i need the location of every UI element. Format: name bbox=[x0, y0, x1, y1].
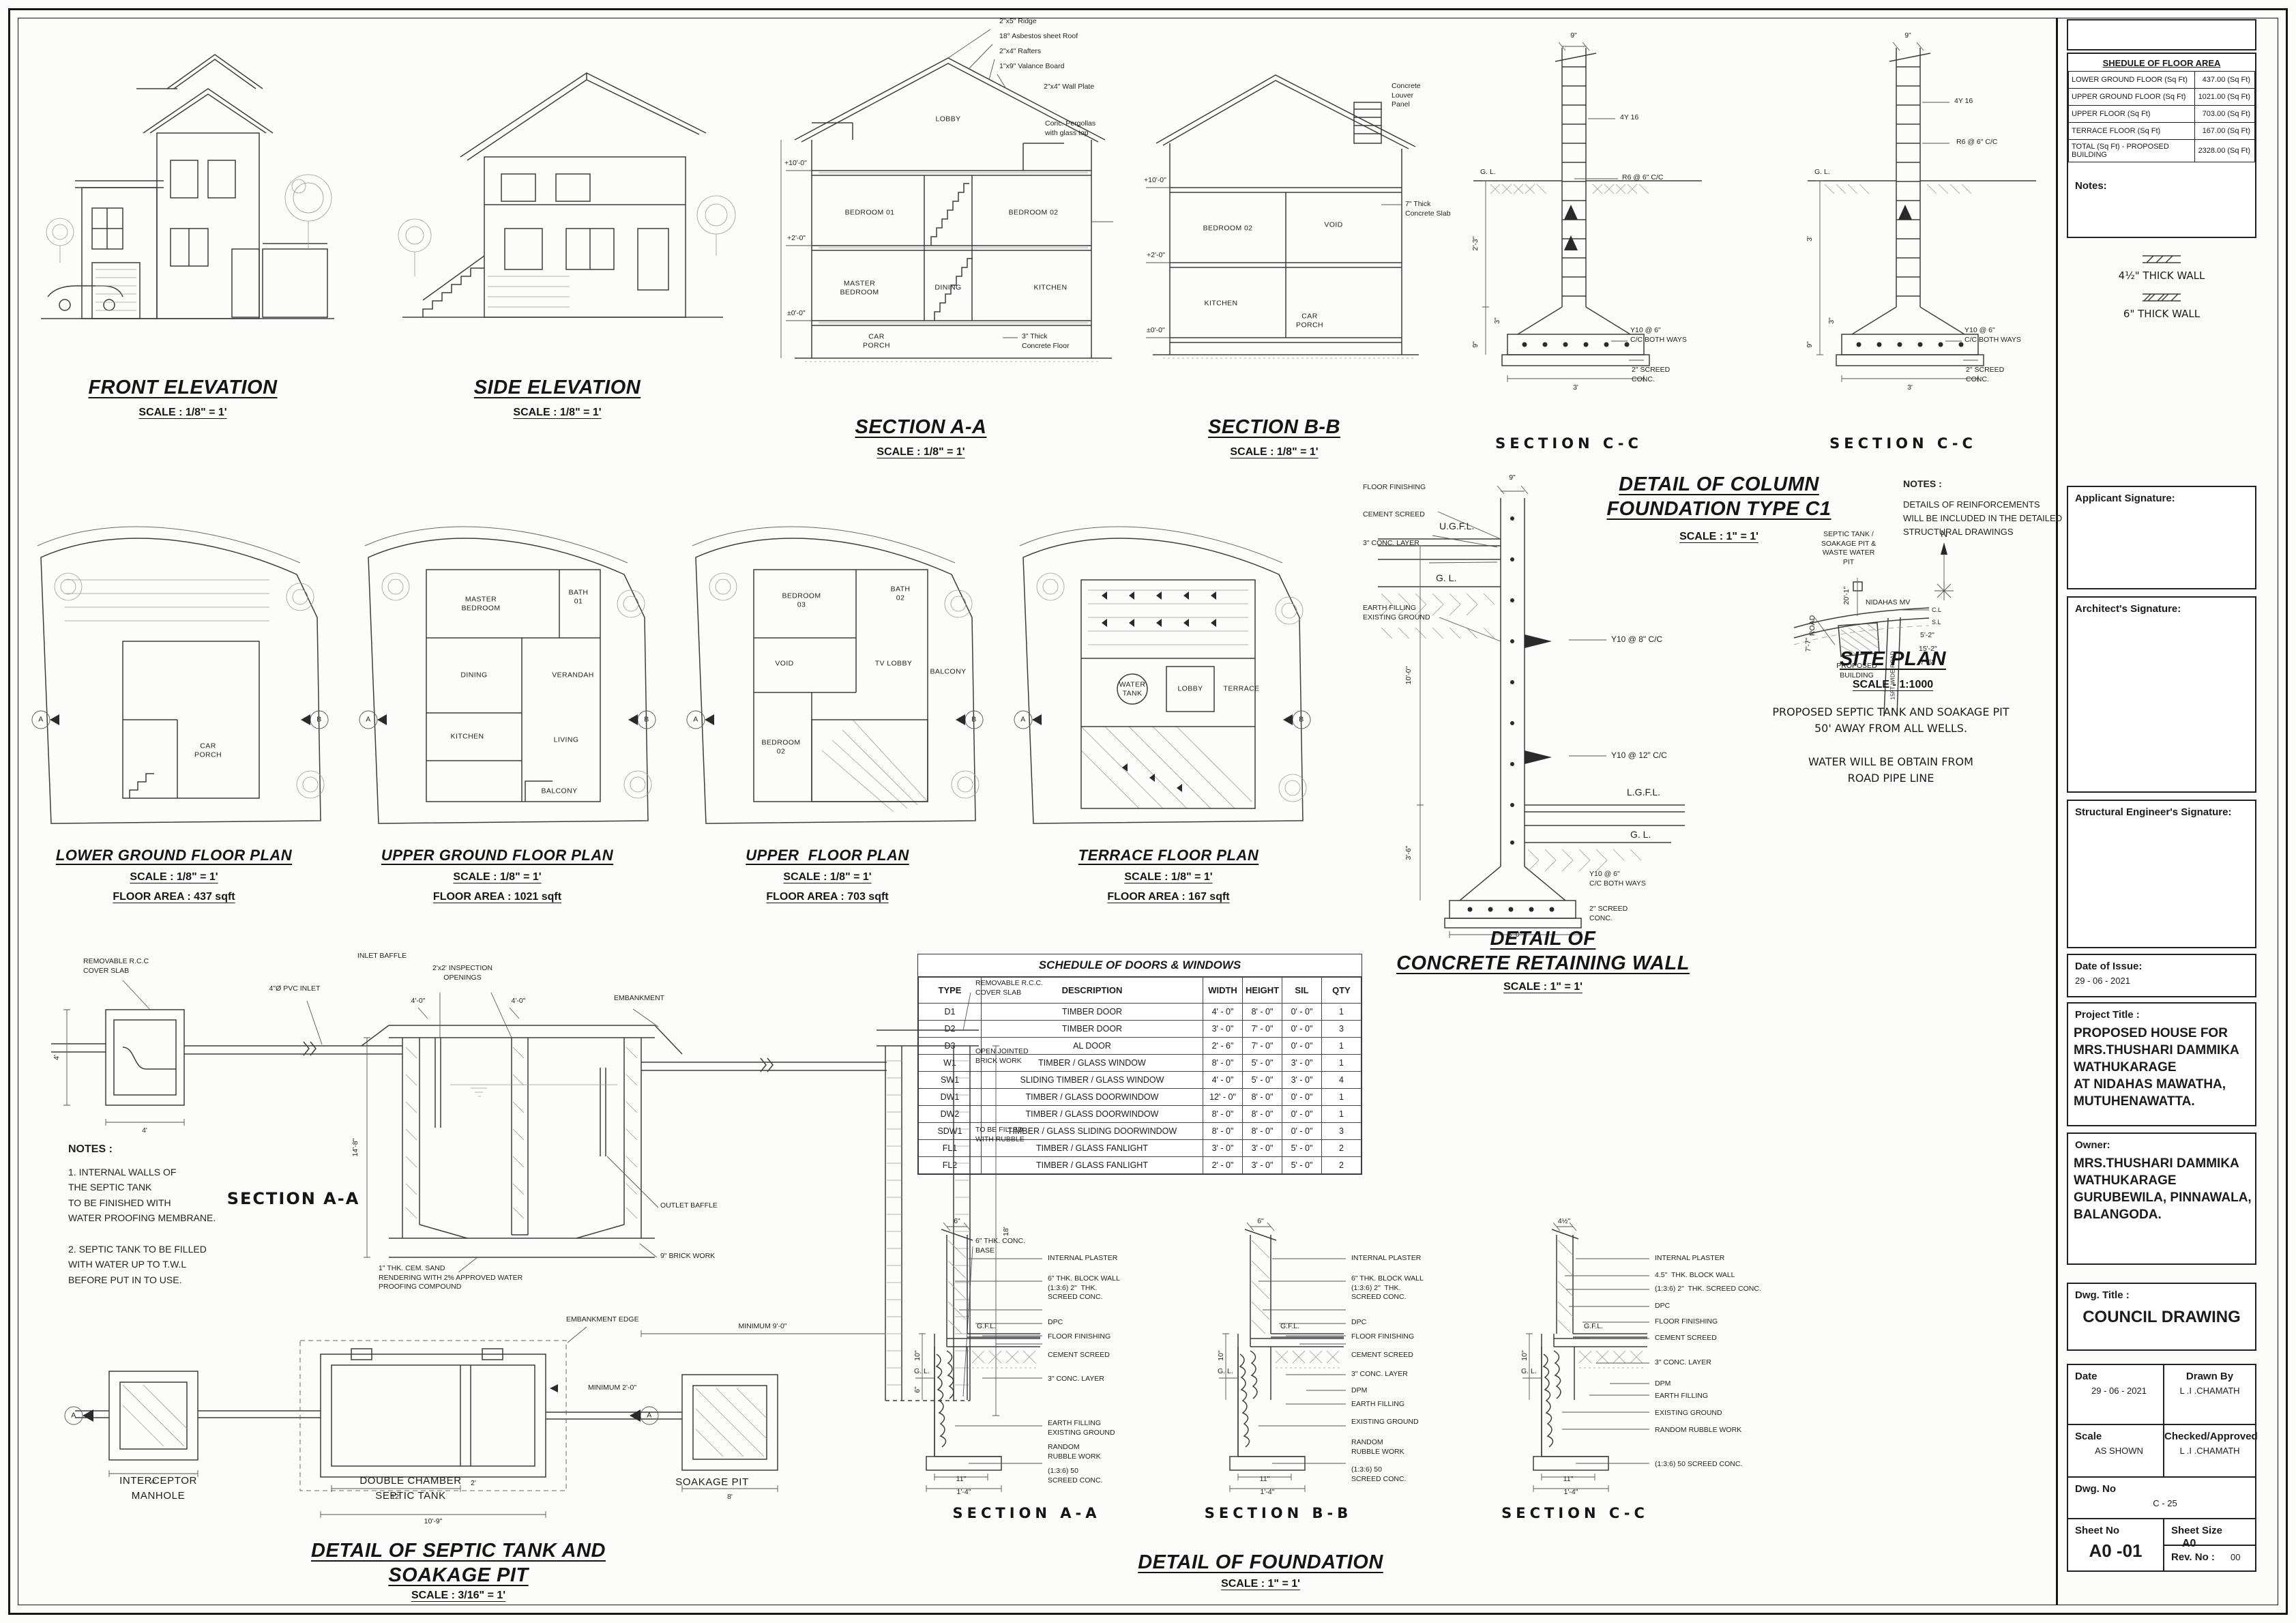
date-of-issue-box: Date of Issue: 29 - 06 - 2021 bbox=[2067, 954, 2256, 997]
owner-label: Owner: bbox=[2075, 1139, 2255, 1151]
fcc-gl: G. L. bbox=[1521, 1367, 1537, 1377]
upper-floor-plan-title: UPPER FLOOR PLAN bbox=[746, 846, 909, 865]
front-elevation-scale: SCALE : 1/8" = 1' bbox=[138, 407, 226, 419]
fa-row: TERRACE FLOOR (Sq Ft)167.00 (Sq Ft) bbox=[2069, 123, 2255, 140]
fbb-dim-10: 10" bbox=[1217, 1350, 1226, 1360]
floor-area-box: SHEDULE OF FLOOR AREA LOWER GROUND FLOOR… bbox=[2067, 53, 2256, 238]
upper-floor-plan-area: FLOOR AREA : 703 sqft bbox=[766, 891, 888, 903]
soakage-pit-label: SOAKAGE PIT bbox=[675, 1475, 748, 1490]
lg-marker-a: A bbox=[38, 716, 43, 725]
titleblock-empty-box bbox=[2067, 19, 2256, 50]
fcc-c-plaster: INTERNAL PLASTER bbox=[1655, 1254, 1724, 1263]
ug-room-kitchen: KITCHEN bbox=[451, 733, 484, 742]
cell: 0' - 0" bbox=[1282, 1004, 1322, 1021]
sp-dim-4b: 4' bbox=[142, 1126, 147, 1136]
upper-floor-plan-drawing: BEDROOM 03 BATH 02 VOID TV LOBBY BEDROOM… bbox=[682, 515, 986, 839]
drawn-by-cell: Drawn By L .I .CHAMATH bbox=[2164, 1365, 2255, 1425]
rw-cement-screed: CEMENT SCREED bbox=[1363, 510, 1425, 520]
dwg-no-value: C - 25 bbox=[2075, 1498, 2255, 1508]
level-2ft: +2'-0" bbox=[787, 234, 806, 244]
fbb-gl: G. L. bbox=[1218, 1367, 1233, 1377]
site-north-label: N bbox=[1941, 527, 1947, 540]
fcc-c-dpc: DPC bbox=[1655, 1302, 1670, 1311]
fa-row: UPPER GROUND FLOOR (Sq Ft)1021.00 (Sq Ft… bbox=[2069, 89, 2255, 106]
ug-room-living: LIVING bbox=[554, 736, 579, 745]
upper-ground-plan-title: UPPER GROUND FLOOR PLAN bbox=[381, 846, 613, 865]
scale-value: AS SHOWN bbox=[2075, 1446, 2163, 1456]
fbb-c-cemscreed: CEMENT SCREED bbox=[1351, 1351, 1413, 1360]
ug-room-bath1: BATH 01 bbox=[569, 588, 589, 605]
front-elevation-drawing bbox=[27, 24, 348, 365]
cell: 0' - 0" bbox=[1282, 1106, 1322, 1123]
ug-room-dining: DINING bbox=[460, 671, 487, 680]
rw-conc-layer: 3" CONC. LAYER bbox=[1363, 539, 1419, 549]
fa-row: TOTAL (Sq Ft) - PROPOSED BUILDING2328.00… bbox=[2069, 140, 2255, 162]
ug-marker-b: B bbox=[644, 716, 649, 725]
rev-no-cell: Rev. No : 00 bbox=[2164, 1546, 2255, 1570]
project-title-value: PROPOSED HOUSE FOR MRS.THUSHARI DAMMIKA … bbox=[2074, 1025, 2255, 1110]
fbb-c-rubble: RANDOM RUBBLE WORK bbox=[1351, 1438, 1404, 1457]
structural-signature-label: Structural Engineer's Signature: bbox=[2075, 806, 2255, 818]
terrace-plan-art bbox=[1010, 515, 1313, 839]
drawn-by-value: L .I .CHAMATH bbox=[2164, 1386, 2255, 1396]
structural-signature-box: Structural Engineer's Signature: bbox=[2067, 800, 2256, 948]
foundation-section-aa: 6" G.F.L. G. L. 10" 6" 11" 1'-4" INTERNA… bbox=[914, 1221, 1166, 1501]
section-bb-drawing: BEDROOM 02 KITCHEN VOID CAR PORCH Concre… bbox=[1129, 34, 1436, 406]
dwg-title-label: Dwg. Title : bbox=[2075, 1289, 2255, 1301]
titleblock-separator bbox=[2056, 18, 2058, 1605]
cell: 3' - 0" bbox=[1203, 1140, 1243, 1157]
fa-label: TERRACE FLOOR (Sq Ft) bbox=[2069, 123, 2195, 140]
col-height: HEIGHT bbox=[1243, 978, 1282, 1004]
cell: 7' - 0" bbox=[1243, 1038, 1282, 1055]
cell: 3' - 0" bbox=[1282, 1055, 1322, 1072]
side-elevation-art bbox=[382, 31, 737, 365]
upper-floor-plan-art bbox=[682, 515, 986, 839]
pergola-callout: Conc. Pergollas with glass top bbox=[1045, 119, 1095, 138]
owner-box: Owner: MRS.THUSHARI DAMMIKA WATHUKARAGE … bbox=[2067, 1132, 2256, 1265]
site-road-name: NIDAHAS MV bbox=[1866, 598, 1910, 608]
sp-dim-40b: 4'-0" bbox=[512, 997, 526, 1006]
section-cc-col-title-2: SECTION C-C bbox=[1829, 435, 1977, 452]
date-label: Date bbox=[2075, 1371, 2163, 1382]
col-9in-dim: 9" bbox=[1471, 341, 1481, 348]
rw-gl: G. L. bbox=[1436, 572, 1456, 584]
col-mesh-callout: Y10 @ 6" C/C BOTH WAYS bbox=[1630, 326, 1687, 345]
col-screed-callout: 2" SCREED CONC. bbox=[1632, 366, 1670, 384]
terrace-plan-scale: SCALE : 1/8" = 1' bbox=[1124, 871, 1212, 883]
foundation-aa-title: SECTION A-A bbox=[953, 1505, 1101, 1521]
fa-value: 2328.00 (Sq Ft) bbox=[2195, 140, 2255, 162]
retaining-wall-scale: SCALE : 1" = 1' bbox=[1503, 981, 1583, 993]
fbb-c-dpc: DPC bbox=[1351, 1318, 1366, 1328]
cell: 2 bbox=[1322, 1140, 1362, 1157]
fbb-c-blockwall: 6" THK. BLOCK WALL (1:3:6) 2" THK. SCREE… bbox=[1351, 1274, 1424, 1302]
checked-value: L .I .CHAMATH bbox=[2164, 1446, 2255, 1456]
septic-note-2: 2. SEPTIC TANK TO BE FILLED WITH WATER U… bbox=[68, 1242, 207, 1287]
site-note-water: WATER WILL BE OBTAIN FROM ROAD PIPE LINE bbox=[1808, 754, 1973, 787]
cell: 2' - 6" bbox=[1203, 1038, 1243, 1055]
terrace-plan-area: FLOOR AREA : 167 sqft bbox=[1107, 891, 1229, 903]
septic-detail-scale: SCALE : 3/16" = 1' bbox=[411, 1590, 505, 1602]
sp-dim-109: 10'-9" bbox=[424, 1517, 443, 1527]
fcc-c-cemscreed: CEMENT SCREED bbox=[1655, 1334, 1717, 1343]
room-kitchen-bb: KITCHEN bbox=[1205, 299, 1238, 308]
sp-dim-40a: 4'-0" bbox=[411, 997, 426, 1006]
foundation-cc-title: SECTION C-C bbox=[1501, 1505, 1649, 1521]
ridge-callout: 2"x5" Ridge bbox=[999, 17, 1037, 27]
uf-room-void: VOID bbox=[775, 660, 793, 669]
fa-value: 437.00 (Sq Ft) bbox=[2195, 72, 2255, 89]
room-lobby: LOBBY bbox=[935, 115, 960, 124]
sp-dim-4: 4' bbox=[53, 1055, 62, 1060]
faa-dim-6: 6" bbox=[954, 1217, 960, 1227]
cell: 8' - 0" bbox=[1243, 1004, 1282, 1021]
faa-gl: G. L. bbox=[914, 1367, 930, 1377]
col2-3in-dim: 3" bbox=[1827, 317, 1837, 324]
section-aa-title: SECTION A-A bbox=[855, 415, 987, 439]
sheet-no-cell: Sheet No A0 -01 bbox=[2068, 1519, 2164, 1570]
fcc-c-dpm: DPM bbox=[1655, 1379, 1671, 1389]
concrete-floor-callout: 3" Thick Concrete Floor bbox=[1022, 332, 1069, 351]
col-gl-label: G. L. bbox=[1480, 168, 1496, 177]
fcc-c-floorfin: FLOOR FINISHING bbox=[1655, 1317, 1718, 1327]
date-of-issue-label: Date of Issue: bbox=[2075, 961, 2255, 972]
tr-marker-b: B bbox=[1299, 716, 1304, 725]
louver-panel-callout: Concrete Louver Panel bbox=[1392, 82, 1421, 110]
cell: 3' - 0" bbox=[1243, 1140, 1282, 1157]
foundation-detail-scale: SCALE : 1" = 1' bbox=[1221, 1578, 1300, 1590]
fbb-c-floorfin: FLOOR FINISHING bbox=[1351, 1332, 1414, 1342]
fbb-c-plaster: INTERNAL PLASTER bbox=[1351, 1254, 1421, 1263]
col-bars-callout: 4Y 16 bbox=[1620, 113, 1638, 123]
uf-room-bed2: BEDROOM 02 bbox=[761, 738, 800, 755]
sp-brick-work: 9" BRICK WORK bbox=[660, 1252, 715, 1261]
fcc-c-screed2: (1:3:6) 2" THK. SCREED CONC. bbox=[1655, 1285, 1761, 1294]
lower-ground-plan-drawing: CAR PORCH A B bbox=[27, 515, 331, 839]
side-elevation-drawing bbox=[382, 31, 737, 365]
fa-label: LOWER GROUND FLOOR (Sq Ft) bbox=[2069, 72, 2195, 89]
faa-dim-14: 1'-4" bbox=[957, 1488, 971, 1497]
foundation-detail-title: DETAIL OF FOUNDATION bbox=[1138, 1550, 1383, 1575]
fa-value: 167.00 (Sq Ft) bbox=[2195, 123, 2255, 140]
valance-board-callout: 1"x9" Valance Board bbox=[999, 62, 1064, 72]
sheet-no-label: Sheet No bbox=[2075, 1525, 2163, 1536]
cell: 5' - 0" bbox=[1243, 1072, 1282, 1089]
sp-rcc-left: REMOVABLE R.C.C COVER SLAB bbox=[83, 957, 149, 976]
site-note-septic: PROPOSED SEPTIC TANK AND SOAKAGE PIT 50'… bbox=[1772, 704, 2009, 737]
scale-label: Scale bbox=[2075, 1431, 2163, 1442]
fbb-dim-11: 11" bbox=[1260, 1475, 1270, 1485]
cell: 3 bbox=[1322, 1123, 1362, 1140]
terrace-plan-drawing: LOBBY TERRACE WATER TANK A B bbox=[1010, 515, 1313, 839]
cell: 5' - 0" bbox=[1282, 1157, 1322, 1174]
fcc-c-screedconc: (1:3:6) 50 SCREED CONC. bbox=[1655, 1460, 1742, 1470]
retaining-wall-title: DETAIL OF CONCRETE RETAINING WALL bbox=[1396, 926, 1690, 976]
col2-9in-dim: 9" bbox=[1806, 341, 1815, 348]
fbb-gfl: G.F.L. bbox=[1280, 1322, 1299, 1332]
fcc-c-blockwall: 4.5" THK. BLOCK WALL bbox=[1655, 1271, 1735, 1281]
cell: 8' - 0" bbox=[1243, 1089, 1282, 1106]
dwg-no-cell: Dwg. No C - 25 bbox=[2068, 1478, 2255, 1519]
owner-value: MRS.THUSHARI DAMMIKA WATHUKARAGE GURUBEW… bbox=[2074, 1155, 2255, 1223]
terrace-plan-title: TERRACE FLOOR PLAN bbox=[1078, 846, 1259, 865]
tr-room-terrace: TERRACE bbox=[1224, 685, 1260, 694]
room-void-bb: VOID bbox=[1324, 221, 1342, 230]
upper-ground-plan-scale: SCALE : 1/8" = 1' bbox=[453, 871, 541, 883]
fbb-c-screedconc: (1:3:6) 50 SCREED CONC. bbox=[1351, 1465, 1407, 1484]
col-stirrups-callout: R6 @ 6" C/C bbox=[1622, 173, 1663, 183]
roof-sheet-callout: 18° Asbestos sheet Roof bbox=[999, 32, 1078, 42]
lg-room-car-porch: CAR PORCH bbox=[194, 742, 222, 759]
cell: 1 bbox=[1322, 1038, 1362, 1055]
septic-detail-title: DETAIL OF SEPTIC TANK AND SOAKAGE PIT bbox=[311, 1538, 606, 1588]
faa-dim-10: 10" bbox=[913, 1350, 923, 1360]
col-foundation-notes: DETAILS OF REINFORCEMENTS WILL BE INCLUD… bbox=[1903, 498, 2062, 539]
fa-label: UPPER GROUND FLOOR (Sq Ft) bbox=[2069, 89, 2195, 106]
sp-rcc-right: REMOVABLE R.C.C. COVER SLAB bbox=[975, 979, 1043, 997]
rw-screed: 2" SCREED CONC. bbox=[1589, 905, 1628, 923]
retaining-wall-detail: FLOOR FINISHING CEMENT SCREED 3" CONC. L… bbox=[1357, 471, 1698, 941]
sheet-no-value: A0 -01 bbox=[2068, 1540, 2163, 1562]
cell: 12' - 0" bbox=[1203, 1089, 1243, 1106]
level-0ft: ±0'-0" bbox=[787, 309, 806, 319]
double-chamber-label: DOUBLE CHAMBER SEPTIC TANK bbox=[359, 1474, 461, 1504]
site-sl: S.L bbox=[1932, 619, 1941, 627]
faa-gfl: G.F.L. bbox=[977, 1322, 996, 1332]
applicant-signature-box: Applicant Signature: bbox=[2067, 486, 2256, 589]
uf-room-tvlobby: TV LOBBY bbox=[875, 660, 913, 669]
fbb-dim-6: 6" bbox=[1257, 1217, 1264, 1227]
level-10ft: +10'-0" bbox=[784, 159, 807, 169]
cell: 3 bbox=[1322, 1021, 1362, 1038]
front-elevation-art bbox=[27, 24, 348, 365]
drawn-by-label: Drawn By bbox=[2164, 1371, 2255, 1382]
thick-wall-label: 6" THICK WALL bbox=[2067, 308, 2256, 320]
slab7-callout: 7" Thick Concrete Slab bbox=[1405, 200, 1451, 218]
septic-plan-marker-a2: A bbox=[647, 1412, 651, 1420]
rev-no-label: Rev. No : bbox=[2171, 1551, 2215, 1563]
tr-marker-a: A bbox=[1020, 716, 1025, 725]
sp-fill-rubble: TO BE FILLED WITH RUBBLE bbox=[975, 1126, 1025, 1144]
cell: 1 bbox=[1322, 1106, 1362, 1123]
cell: 2' - 0" bbox=[1203, 1157, 1243, 1174]
lower-ground-plan-title: LOWER GROUND FLOOR PLAN bbox=[56, 846, 292, 865]
uf-room-bed3: BEDROOM 03 bbox=[782, 591, 821, 609]
fcc-c-earth: EARTH FILLING bbox=[1655, 1392, 1708, 1401]
cell: 8' - 0" bbox=[1203, 1055, 1243, 1072]
project-title-label: Project Title : bbox=[2075, 1009, 2255, 1021]
site-septic-label: SEPTIC TANK / SOAKAGE PIT & WASTE WATER … bbox=[1821, 530, 1876, 568]
architect-signature-box: Architect's Signature: bbox=[2067, 596, 2256, 793]
wall-plate-callout: 2"x4" Wall Plate bbox=[1044, 83, 1094, 92]
faa-c-rubble: RANDOM RUBBLE WORK bbox=[1048, 1443, 1101, 1461]
cell: 3' - 0" bbox=[1243, 1157, 1282, 1174]
fbb-c-existing: EXISTING GROUND bbox=[1351, 1418, 1419, 1427]
septic-note-1: 1. INTERNAL WALLS OF THE SEPTIC TANK TO … bbox=[68, 1165, 216, 1226]
lower-ground-plan-area: FLOOR AREA : 437 sqft bbox=[113, 891, 235, 903]
col-base-width-dim: 3' bbox=[1573, 383, 1578, 393]
sp-pvc-inlet: 4"Ø PVC INLET bbox=[269, 984, 321, 994]
cell: 8' - 0" bbox=[1243, 1106, 1282, 1123]
cell: 1 bbox=[1322, 1004, 1362, 1021]
room-dining: DINING bbox=[934, 284, 961, 293]
uf-marker-b: B bbox=[971, 716, 976, 725]
septic-notes-label: NOTES : bbox=[68, 1143, 113, 1157]
sp-outlet-baffle: OUTLET BAFFLE bbox=[660, 1201, 718, 1211]
wall-legend: 4½" THICK WALL 6" THICK WALL bbox=[2067, 254, 2256, 320]
faa-c-screedconc: (1:3:6) 50 SCREED CONC. bbox=[1048, 1467, 1103, 1485]
site-plan-scale: SCALE - 1:1000 bbox=[1853, 679, 1933, 691]
faa-dim-6b: 6" bbox=[913, 1386, 923, 1393]
sp-dim-148: 14'-8" bbox=[351, 1139, 361, 1157]
sp-dim-2: 2' bbox=[471, 1479, 476, 1489]
col2-screed-callout: 2" SCREED CONC. bbox=[1966, 366, 2004, 384]
cell: 8' - 0" bbox=[1203, 1106, 1243, 1123]
side-elevation-title: SIDE ELEVATION bbox=[474, 375, 641, 400]
septic-section-label: SECTION A-A bbox=[227, 1189, 360, 1208]
cell: 8' - 0" bbox=[1243, 1123, 1282, 1140]
side-elevation-scale: SCALE : 1/8" = 1' bbox=[513, 407, 601, 419]
foundation-bb-title: SECTION B-B bbox=[1205, 1505, 1353, 1521]
col-sil: SIL bbox=[1282, 978, 1322, 1004]
rafters-callout: 2"x4" Rafters bbox=[999, 47, 1041, 57]
col-foundation-notes-label: NOTES : bbox=[1903, 478, 1942, 490]
foundation-bb-art bbox=[1218, 1221, 1347, 1494]
architect-signature-label: Architect's Signature: bbox=[2075, 603, 2255, 615]
faa-c-dpc: DPC bbox=[1048, 1318, 1063, 1328]
lower-ground-plan-scale: SCALE : 1/8" = 1' bbox=[130, 871, 218, 883]
rw-gl2: G. L. bbox=[1630, 828, 1651, 840]
sheet-size-cell: Sheet Size A0 bbox=[2164, 1519, 2255, 1546]
fbb-c-conclayer: 3" CONC. LAYER bbox=[1351, 1370, 1408, 1379]
section-bb-title: SECTION B-B bbox=[1208, 415, 1340, 439]
date-value: 29 - 06 - 2021 bbox=[2075, 1386, 2163, 1396]
uf-marker-a: A bbox=[693, 716, 698, 725]
fa-value: 1021.00 (Sq Ft) bbox=[2195, 89, 2255, 106]
fbb-c-earth: EARTH FILLING bbox=[1351, 1400, 1404, 1409]
fcc-c-existing: EXISTING GROUND bbox=[1655, 1409, 1722, 1418]
foundation-section-bb: 6" G.F.L. G. L. 10" 11" 1'-4" INTERNAL P… bbox=[1218, 1221, 1470, 1501]
rw-lgfl: L.G.F.L. bbox=[1627, 786, 1660, 798]
cell: 4' - 0" bbox=[1203, 1004, 1243, 1021]
col2-depth-dim: 3' bbox=[1806, 236, 1815, 242]
uf-room-bath2: BATH 02 bbox=[891, 585, 911, 602]
rw-footing-dim: 3'-6" bbox=[1404, 846, 1414, 860]
sp-embankment: EMBANKMENT bbox=[614, 994, 664, 1004]
sp-min-2: MINIMUM 2'-0" bbox=[588, 1384, 636, 1393]
floor-area-table: LOWER GROUND FLOOR (Sq Ft)437.00 (Sq Ft)… bbox=[2068, 71, 2255, 162]
cell: 0' - 0" bbox=[1282, 1021, 1322, 1038]
cell: 2 bbox=[1322, 1157, 1362, 1174]
level-10ft-bb: +10'-0" bbox=[1144, 176, 1166, 186]
ug-room-master: MASTER BEDROOM bbox=[461, 595, 500, 612]
foundation-cc-art bbox=[1521, 1221, 1651, 1494]
site-dim-20-1: 20'-1" bbox=[1842, 587, 1852, 605]
section-aa-scale: SCALE : 1/8" = 1' bbox=[877, 446, 965, 458]
council-drawing-sheet: FRONT ELEVATION SCALE : 1/8" = 1' SIDE E… bbox=[0, 0, 2296, 1623]
rw-y10-8: Y10 @ 8" C/C bbox=[1611, 634, 1662, 645]
checked-cell: Checked/Approved L .I .CHAMATH bbox=[2164, 1425, 2255, 1478]
sheet-size-label: Sheet Size bbox=[2171, 1525, 2222, 1536]
fcc-dim-10: 10" bbox=[1520, 1350, 1530, 1360]
interceptor-manhole-label: INTERCEPTOR MANHOLE bbox=[119, 1474, 197, 1504]
fa-label: UPPER FLOOR (Sq Ft) bbox=[2069, 106, 2195, 123]
foundation-aa-art bbox=[914, 1221, 1044, 1494]
septic-plan-marker-a1: A bbox=[71, 1412, 76, 1420]
date-cell: Date 29 - 06 - 2021 bbox=[2068, 1365, 2164, 1425]
sp-embankment-edge: EMBANKMENT EDGE bbox=[566, 1315, 639, 1325]
thin-wall-label: 4½" THICK WALL bbox=[2067, 269, 2256, 282]
fcc-gfl: G.F.L. bbox=[1584, 1322, 1603, 1332]
col-width: WIDTH bbox=[1203, 978, 1243, 1004]
faa-c-plaster: INTERNAL PLASTER bbox=[1048, 1254, 1117, 1263]
rw-floor-finishing: FLOOR FINISHING bbox=[1363, 483, 1426, 493]
dwg-title-value: COUNCIL DRAWING bbox=[2068, 1308, 2255, 1327]
room-car-porch: CAR PORCH bbox=[863, 332, 890, 349]
sp-inspection: 2'x2' INSPECTION OPENINGS bbox=[432, 964, 492, 982]
rw-y10-12: Y10 @ 12" C/C bbox=[1611, 750, 1667, 761]
thick-wall-hatch-icon bbox=[2141, 293, 2182, 302]
floor-area-title: SHEDULE OF FLOOR AREA bbox=[2068, 54, 2255, 71]
room-bedroom02-bb: BEDROOM 02 bbox=[1203, 224, 1253, 233]
cell: 5' - 0" bbox=[1282, 1140, 1322, 1157]
fbb-c-dpm: DPM bbox=[1351, 1386, 1367, 1396]
fa-label: TOTAL (Sq Ft) - PROPOSED BUILDING bbox=[2069, 140, 2195, 162]
upper-ground-plan-drawing: MASTER BEDROOM BATH 01 DINING VERANDAH K… bbox=[355, 515, 658, 839]
site-road-label: ROAD bbox=[1808, 615, 1818, 636]
site-dim-7-7: 7'-7" bbox=[1804, 638, 1814, 652]
room-car-porch-bb: CAR PORCH bbox=[1296, 312, 1323, 329]
col2-gl-label: G. L. bbox=[1814, 168, 1830, 177]
col2-width-dim: 9" bbox=[1904, 31, 1911, 41]
room-kitchen: KITCHEN bbox=[1034, 284, 1068, 293]
faa-c-earth: EARTH FILLING EXISTING GROUND bbox=[1048, 1419, 1115, 1437]
section-bb-art bbox=[1129, 34, 1436, 362]
fcc-c-conclayer: 3" CONC. LAYER bbox=[1655, 1358, 1711, 1368]
col2-mesh-callout: Y10 @ 6" C/C BOTH WAYS bbox=[1964, 326, 2021, 345]
col2-stirrups-callout: R6 @ 6" C/C bbox=[1956, 138, 1997, 147]
fa-value: 703.00 (Sq Ft) bbox=[2195, 106, 2255, 123]
section-cc-col-title-1: SECTION C-C bbox=[1495, 435, 1643, 452]
upper-floor-plan-scale: SCALE : 1/8" = 1' bbox=[783, 871, 871, 883]
upper-ground-plan-art bbox=[355, 515, 658, 839]
column-foundation-detail-2: 9" 4Y 16 R6 @ 6" C/C G. L. 3' 3" 9" Y10 … bbox=[1794, 34, 2046, 406]
faa-c-floorfin: FLOOR FINISHING bbox=[1048, 1332, 1110, 1342]
titleblock-notes-label: Notes: bbox=[2075, 180, 2255, 192]
cell: 0' - 0" bbox=[1282, 1089, 1322, 1106]
col-depth-dim: 2'-3" bbox=[1471, 237, 1481, 251]
scale-cell: Scale AS SHOWN bbox=[2068, 1425, 2164, 1478]
ug-marker-a: A bbox=[366, 716, 370, 725]
fa-row: LOWER GROUND FLOOR (Sq Ft)437.00 (Sq Ft) bbox=[2069, 72, 2255, 89]
uf-room-balcony: BALCONY bbox=[930, 668, 967, 677]
ug-room-balcony: BALCONY bbox=[542, 787, 578, 796]
cell: 1 bbox=[1322, 1055, 1362, 1072]
rw-mesh: Y10 @ 6" C/C BOTH WAYS bbox=[1589, 870, 1646, 888]
col-3in-dim: 3" bbox=[1493, 317, 1503, 324]
faa-c-conclayer: 3" CONC. LAYER bbox=[1048, 1375, 1104, 1384]
col2-base-width-dim: 3' bbox=[1907, 383, 1913, 393]
site-plan-title: SITE PLAN bbox=[1840, 647, 1946, 671]
site-cl: C.L bbox=[1932, 606, 1941, 615]
rw-ugfl: U.G.F.L. bbox=[1439, 520, 1474, 532]
fcc-dim-14: 1'-4" bbox=[1564, 1488, 1578, 1497]
lower-ground-plan-art bbox=[27, 515, 331, 839]
site-dim-5-2: 5'-2" bbox=[1920, 631, 1934, 641]
section-bb-scale: SCALE : 1/8" = 1' bbox=[1230, 446, 1318, 458]
rw-height-dim: 10'-0" bbox=[1404, 667, 1414, 685]
